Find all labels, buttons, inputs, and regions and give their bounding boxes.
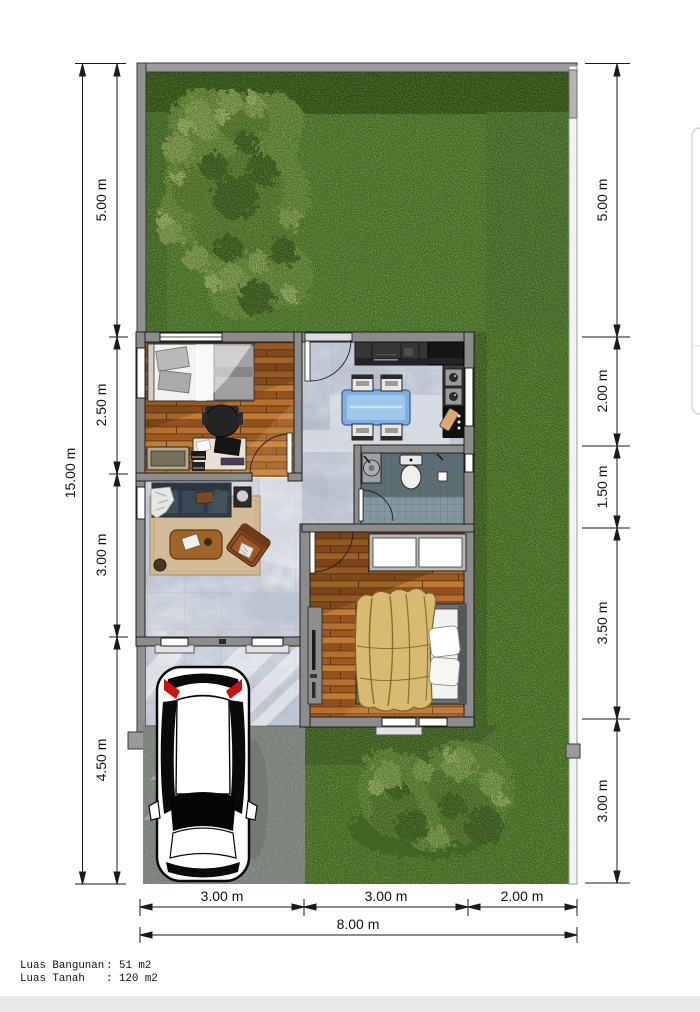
svg-text:2.00 m: 2.00 m xyxy=(501,888,544,904)
svg-text:2.00 m: 2.00 m xyxy=(594,370,610,413)
svg-text:: 120 m2: : 120 m2 xyxy=(106,973,158,985)
svg-text:4.50 m: 4.50 m xyxy=(93,739,109,782)
svg-text:3.00 m: 3.00 m xyxy=(93,534,109,577)
svg-text:Luas Tanah: Luas Tanah xyxy=(20,973,85,985)
svg-text:: 51 m2: : 51 m2 xyxy=(106,960,151,972)
svg-text:5.00 m: 5.00 m xyxy=(594,179,610,222)
svg-text:1.50 m: 1.50 m xyxy=(594,466,610,509)
svg-text:3.00 m: 3.00 m xyxy=(594,780,610,823)
svg-text:3.50 m: 3.50 m xyxy=(594,602,610,645)
svg-text:15.00 m: 15.00 m xyxy=(62,448,78,499)
svg-text:3.00 m: 3.00 m xyxy=(201,888,244,904)
svg-text:5.00 m: 5.00 m xyxy=(93,179,109,222)
svg-text:Luas Bangunan: Luas Bangunan xyxy=(20,960,104,972)
svg-text:8.00 m: 8.00 m xyxy=(337,916,380,932)
svg-text:3.00 m: 3.00 m xyxy=(365,888,408,904)
svg-text:2.50 m: 2.50 m xyxy=(93,384,109,427)
